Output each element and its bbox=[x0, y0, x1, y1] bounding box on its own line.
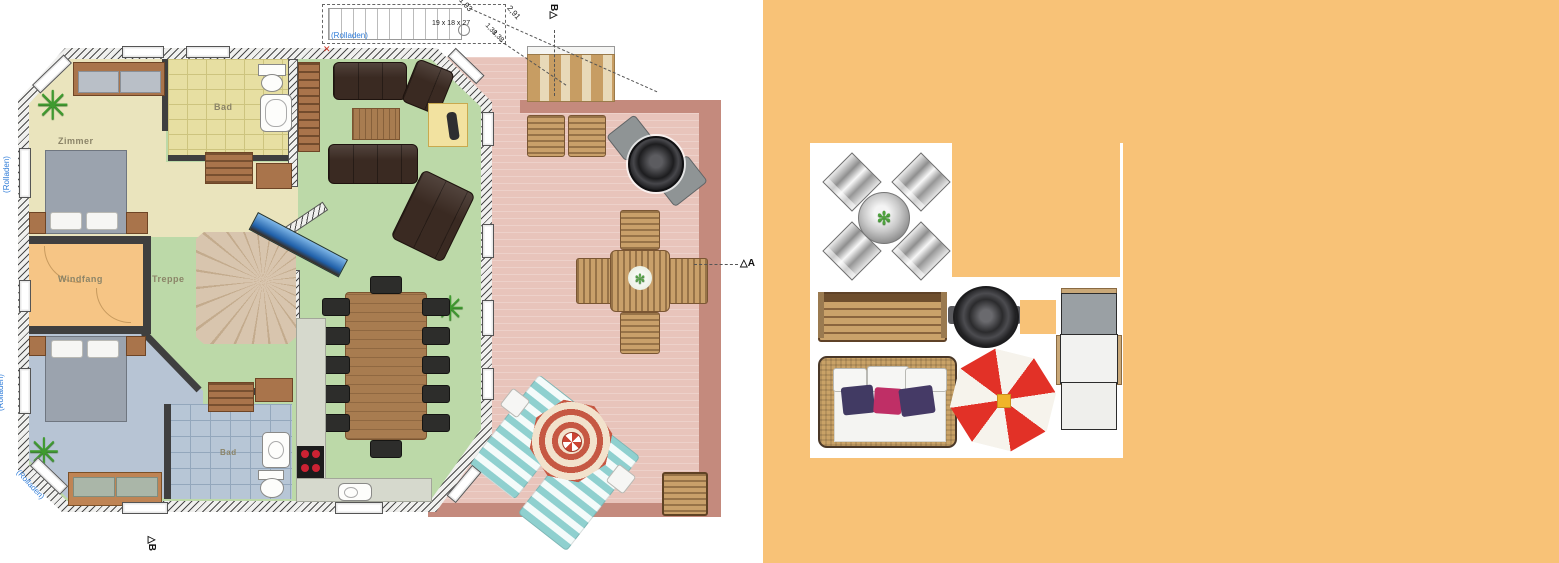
section-marker-b-top: B△ bbox=[548, 4, 559, 19]
floorplan-scene: ✻ ✳ Zimmer bbox=[0, 0, 1559, 563]
lounger-icon bbox=[568, 115, 606, 157]
parasol-center bbox=[997, 394, 1011, 408]
rolladen-label-left-lower: (Rolladen) bbox=[0, 374, 5, 411]
panel-notch bbox=[952, 143, 1120, 277]
stairs-label: Treppe bbox=[152, 274, 185, 284]
wardrobe-icon bbox=[73, 62, 165, 96]
dining-chair-icon bbox=[422, 298, 450, 316]
window bbox=[335, 502, 383, 514]
burner bbox=[301, 464, 309, 472]
bench-cushion bbox=[116, 477, 158, 497]
daybed-cushion-navy bbox=[841, 384, 876, 415]
dining-chair-icon bbox=[422, 356, 450, 374]
window bbox=[482, 224, 494, 258]
bed-pillow bbox=[86, 212, 118, 230]
bench-cushion bbox=[73, 477, 115, 497]
dining-chair-icon bbox=[370, 440, 402, 458]
spiral-stairs bbox=[196, 232, 296, 344]
window bbox=[122, 502, 168, 514]
interior-wall bbox=[164, 404, 171, 499]
daybed-cushion-purple bbox=[898, 385, 936, 417]
window bbox=[122, 46, 164, 58]
dining-chair-icon bbox=[322, 327, 350, 345]
threshold bbox=[205, 152, 253, 184]
flower-centerpiece-icon: ✻ bbox=[628, 266, 652, 290]
terrace-wall-right bbox=[699, 100, 721, 517]
coffee-table-icon bbox=[352, 108, 400, 140]
entry-label: Windfang bbox=[58, 274, 103, 284]
bathtub-basin bbox=[265, 99, 287, 127]
bath-top-label: Bad bbox=[214, 102, 233, 112]
patio-chair-icon bbox=[620, 312, 660, 354]
sink-basin bbox=[344, 487, 358, 498]
lounger-icon bbox=[527, 115, 565, 157]
nightstand bbox=[29, 212, 46, 234]
interior-wall bbox=[143, 236, 151, 334]
threshold bbox=[255, 378, 293, 402]
plant-glyph: ✻ bbox=[876, 209, 891, 227]
marker-triangle-icon: △ bbox=[146, 536, 157, 544]
nightstand bbox=[29, 336, 46, 356]
rolladen-label-top: (Rolladen) bbox=[331, 31, 368, 40]
dining-chair-icon bbox=[322, 298, 350, 316]
dining-chair-icon bbox=[370, 276, 402, 294]
dining-table-icon bbox=[345, 292, 427, 440]
dining-chair-icon bbox=[322, 385, 350, 403]
dim-label: 2,91 bbox=[505, 4, 522, 22]
patio-chair-icon bbox=[620, 210, 660, 250]
bench-armrest bbox=[818, 292, 824, 338]
rolladen-label-left-upper: (Rolladen) bbox=[2, 156, 11, 193]
sofa-icon bbox=[333, 62, 407, 100]
threshold bbox=[208, 382, 254, 412]
wardrobe-door bbox=[78, 71, 119, 93]
marker-letter: B bbox=[146, 544, 157, 551]
kitchen-sink-icon bbox=[338, 483, 372, 501]
dining-chair-icon bbox=[322, 356, 350, 374]
garden-bench-icon bbox=[818, 292, 947, 342]
dining-chair-icon bbox=[422, 327, 450, 345]
lounger-foot bbox=[1061, 382, 1117, 430]
lounger-head bbox=[1061, 293, 1117, 337]
metal-table-icon: ✻ bbox=[858, 192, 910, 244]
nightstand bbox=[126, 212, 148, 234]
section-line bbox=[554, 30, 555, 96]
sun-lounger-icon bbox=[1056, 288, 1120, 430]
bed-pillow bbox=[87, 340, 119, 358]
section-line bbox=[694, 264, 738, 265]
side-table-icon bbox=[662, 472, 708, 516]
window bbox=[482, 112, 494, 146]
bed-pillow bbox=[50, 212, 82, 230]
window bbox=[482, 300, 494, 336]
bathtub-icon bbox=[260, 94, 292, 132]
window bbox=[482, 368, 494, 400]
dining-chair-icon bbox=[322, 414, 350, 432]
window bbox=[186, 46, 230, 58]
stair-spec-label: 19 x 18 x 27 bbox=[432, 20, 470, 27]
lounger-mid bbox=[1060, 334, 1118, 384]
toilet-icon bbox=[260, 478, 284, 498]
sink-basin bbox=[268, 441, 284, 459]
window bbox=[19, 368, 31, 414]
bed-pillow bbox=[51, 340, 83, 358]
dining-chair-icon bbox=[422, 385, 450, 403]
bench-armrest bbox=[941, 292, 947, 338]
toilet-icon bbox=[261, 74, 283, 92]
dining-chair-icon bbox=[422, 414, 450, 432]
burner bbox=[301, 450, 309, 458]
stairs-fan bbox=[196, 232, 296, 344]
orange-swatch bbox=[1020, 300, 1056, 334]
red-mark: ✕ bbox=[323, 44, 331, 55]
section-marker-b-bottom: △B bbox=[146, 536, 157, 551]
window bbox=[19, 280, 31, 312]
bedroom1-label: Zimmer bbox=[58, 136, 94, 146]
bench-chest-icon bbox=[68, 472, 162, 506]
wardrobe-door bbox=[120, 71, 161, 93]
closet-icon bbox=[298, 62, 320, 152]
daybed-icon bbox=[818, 356, 957, 448]
nightstand bbox=[126, 336, 146, 356]
stove-icon bbox=[297, 446, 324, 478]
marker-triangle-icon: △ bbox=[548, 11, 559, 19]
sofa-icon bbox=[328, 144, 418, 184]
burner bbox=[312, 464, 320, 472]
bench-backrail bbox=[820, 294, 945, 302]
grill-icon bbox=[628, 136, 684, 192]
interior-wall bbox=[29, 236, 150, 244]
flower-glyph: ✻ bbox=[635, 272, 646, 285]
threshold bbox=[256, 163, 292, 189]
burner bbox=[312, 450, 320, 458]
bath-bottom-label: Bad bbox=[220, 448, 237, 457]
marker-letter: A bbox=[748, 258, 755, 269]
round-grill-icon bbox=[953, 286, 1019, 348]
terrace-parasol-center-icon bbox=[562, 432, 582, 452]
interior-wall bbox=[29, 326, 143, 334]
section-marker-a-right: △A bbox=[740, 258, 755, 269]
awning-icon bbox=[527, 54, 615, 102]
window bbox=[19, 148, 31, 198]
sink-icon bbox=[262, 432, 290, 468]
marker-triangle-icon: △ bbox=[740, 258, 748, 269]
